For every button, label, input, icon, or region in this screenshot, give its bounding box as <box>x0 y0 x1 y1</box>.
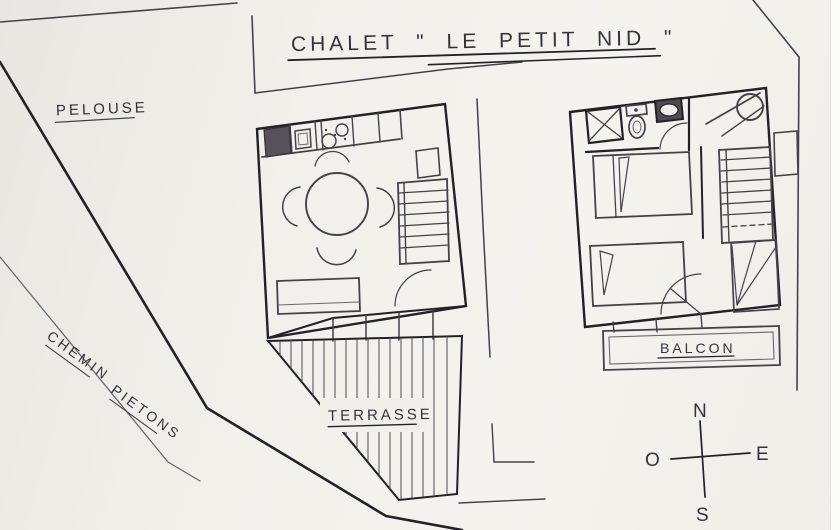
bed-2 <box>590 242 686 306</box>
shelf-cabinet <box>416 148 440 178</box>
svg-text:PELOUSE: PELOUSE <box>56 99 148 119</box>
path-label-pietons: PIETONS <box>106 381 184 445</box>
floor-plan-drawing: CHALET " LE PETIT NID " PELOUSE CHEMIN P… <box>0 0 840 530</box>
title-underline-2 <box>428 56 660 65</box>
compass-west: O <box>645 450 660 471</box>
staircase-upper-floor <box>719 147 773 243</box>
chair-arc-west <box>283 187 300 226</box>
drawing-title: CHALET " LE PETIT NID " <box>288 26 676 67</box>
chair-arc-east <box>377 188 394 227</box>
ground-floor-plan <box>257 104 466 341</box>
property-boundaries <box>0 0 799 530</box>
toilet-icon <box>626 104 647 138</box>
title-text: CHALET " LE PETIT NID " <box>291 26 676 56</box>
bed-1 <box>593 152 692 218</box>
kitchen-counter <box>262 110 402 157</box>
compass-horizontal-axis <box>671 453 750 459</box>
terrace-area: TERRASSE <box>268 336 462 500</box>
bathroom-wall <box>586 148 658 152</box>
bedroom-partition-wall <box>701 147 703 238</box>
balcony-door <box>661 274 701 314</box>
compass-east: E <box>756 444 769 465</box>
svg-text:TERRASSE: TERRASSE <box>328 406 433 425</box>
chair-arc-south <box>317 248 356 265</box>
svg-text:CHEMIN: CHEMIN <box>44 327 113 383</box>
upper-floor-walls <box>570 88 780 327</box>
corner-basin-icon <box>706 93 764 136</box>
exterior-landing <box>774 131 798 176</box>
door-swing-ground <box>395 270 431 306</box>
sofa-bench <box>277 278 360 314</box>
pillow-icon <box>600 251 613 295</box>
winder-steps <box>731 240 779 312</box>
compass-south: S <box>696 505 709 526</box>
lawn-label: PELOUSE <box>55 99 149 122</box>
balcony-label: BALCON <box>658 340 736 358</box>
path-label-chemin: CHEMIN <box>42 327 112 385</box>
kitchen-sink-icon <box>295 129 311 149</box>
svg-text:BALCON: BALCON <box>660 340 736 356</box>
compass-vertical-axis <box>700 421 705 497</box>
dining-table <box>283 152 395 265</box>
washbasin-icon <box>655 98 683 122</box>
stove-icon <box>264 126 291 157</box>
compass-north: N <box>693 401 707 422</box>
pillow-icon <box>619 157 629 212</box>
upper-floor-plan: BALCON <box>570 88 798 370</box>
shower-icon <box>586 107 623 143</box>
bathroom-door-swing <box>660 123 687 149</box>
chair-arc-north <box>315 152 349 166</box>
svg-text:PIETONS: PIETONS <box>108 381 184 442</box>
compass-rose: N S E O <box>645 401 769 526</box>
balcony: BALCON <box>603 315 780 370</box>
hob-burners-icon <box>322 124 348 148</box>
staircase-ground-floor <box>398 179 449 264</box>
